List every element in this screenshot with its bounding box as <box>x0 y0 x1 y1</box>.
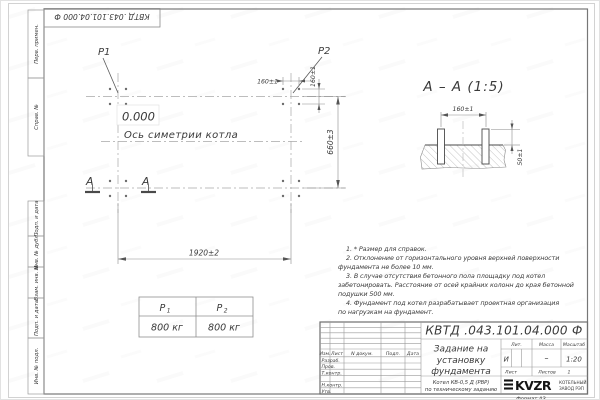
field-podp-i-data-1: Подп. и дата <box>34 200 40 236</box>
section-dim-50-label: 50±1 <box>517 149 524 166</box>
load-table-value-p1: 800 кг <box>151 323 184 334</box>
kvzr-logo: KVZR КОТЕЛЬНЫЙ ЗАВОД РЭП <box>504 378 586 393</box>
tb-row-utv: Утв. <box>322 389 332 395</box>
tb-listov-value: 1 <box>568 370 571 376</box>
tb-col-podp: Подп. <box>386 351 400 357</box>
tb-col-doc: N докум. <box>351 351 373 357</box>
note-line-3: фундамента не более 10 мм. <box>338 263 434 271</box>
notes: 1. * Размер для справок. 2. Отклонение о… <box>338 245 574 316</box>
tb-list-label: Лист <box>504 370 517 376</box>
format-label: Формат А3 <box>516 397 546 400</box>
dim-660-label: 660±3 <box>326 129 335 155</box>
tb-row-prov: Пров. <box>322 364 336 370</box>
load-p2-label: P2 <box>318 46 330 57</box>
section-dim-160-label: 160±1 <box>453 106 474 113</box>
dim-1920-label: 1920±2 <box>189 249 219 258</box>
logo-text: KVZR <box>515 378 552 393</box>
org-line1: КОТЕЛЬНЫЙ <box>559 380 586 385</box>
tb-title-line1: Задание на <box>434 345 489 355</box>
dim-160-y-label: 160±1 <box>310 66 317 87</box>
note-line-2: 2. Отклонение от горизонтального уровня … <box>346 254 559 262</box>
field-inv-no-podl: Инв. № подл. <box>34 348 40 385</box>
tb-col-data: Дата <box>406 351 419 357</box>
tb-product-line1: Котел КВ-0,5 Д (РВР) <box>433 380 490 386</box>
tb-mass-value: – <box>545 354 549 363</box>
drawing-canvas: КВТД .043.101.04.000 Ф Перв. примен. Спр… <box>1 1 600 400</box>
symmetry-axis-label: Ось симетрии котла <box>124 130 238 141</box>
tb-scale-value: 1:20 <box>566 356 582 364</box>
load-p1-label: P1 <box>98 47 110 58</box>
field-sprav-no: Справ. № <box>34 104 40 130</box>
tb-title-line3: фундамента <box>431 367 491 377</box>
tb-lit-value: И <box>504 356 510 364</box>
field-inv-no-dubl: Инв. № дубл. <box>34 233 40 269</box>
tb-mass-header: Масса <box>539 342 554 348</box>
note-line-1: 1. * Размер для справок. <box>346 245 427 253</box>
tb-col-izm: Изм. <box>319 351 330 357</box>
tb-row-nkontr: Н.контр. <box>322 383 343 389</box>
note-line-7: 4. Фундамент под котел разрабатывает про… <box>346 299 559 307</box>
field-podp-i-data-2: Подп. и дата <box>34 300 40 336</box>
note-line-4: 3. В случае отсутствия бетонного пола пл… <box>346 272 545 280</box>
dim-160-x-label: 160±1 <box>257 79 278 86</box>
tb-lit-header: Лит. <box>510 342 522 348</box>
level-mark: 0.000 <box>122 110 155 124</box>
tb-col-list: Лист <box>330 351 343 357</box>
tb-row-razrab: Разраб. <box>322 358 340 364</box>
tb-listov-label: Листов <box>537 370 556 376</box>
watermark-texture <box>9 4 594 397</box>
tb-product-line2: по техническому заданию <box>425 387 498 393</box>
load-table-value-p2: 800 кг <box>208 323 241 334</box>
note-line-8: по нагрузкам на фундамент. <box>338 308 433 316</box>
org-line2: ЗАВОД РЭП <box>559 386 584 391</box>
note-line-5: забетонировать. Расстояние от осей крайн… <box>338 281 574 289</box>
tb-scale-header: Масштаб <box>563 342 585 348</box>
tb-title-line2: установку <box>436 356 486 366</box>
drawing-sheet: КВТД .043.101.04.000 Ф Перв. примен. Спр… <box>0 0 600 400</box>
field-vzam-inv-no: Взам. инв. № <box>34 265 40 301</box>
tb-row-tkontr: Т.контр. <box>322 370 342 376</box>
section-title: А – А (1:5) <box>422 79 504 95</box>
tb-doc-number: КВТД .043.101.04.000 Ф <box>425 324 582 338</box>
note-line-6: подушки 500 мм. <box>338 290 395 298</box>
field-perv-primen: Перв. примен. <box>34 24 40 64</box>
stamp-doc-number: КВТД .043.101.04.000 Ф <box>54 12 150 21</box>
